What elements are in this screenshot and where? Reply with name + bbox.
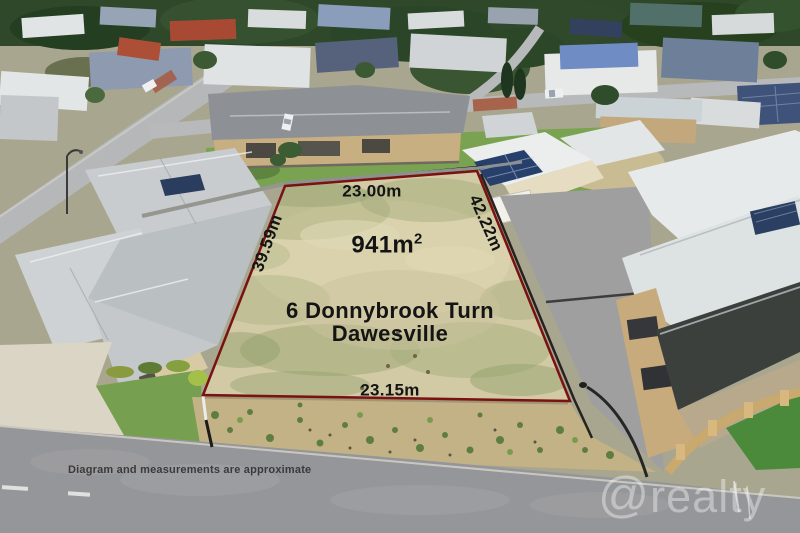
- aerial-photo-container: 23.00m 39.59m 42.22m 941m2 6 Donnybrook …: [0, 0, 800, 533]
- area-label: 941m2: [351, 233, 422, 258]
- at-symbol-icon: @: [598, 466, 650, 523]
- atrealty-watermark-logo: @realty: [598, 470, 766, 520]
- measurement-bottom: 23.15m: [360, 382, 419, 399]
- watermark-brand-name: realty: [650, 471, 766, 522]
- area-superscript: 2: [414, 232, 423, 248]
- measurement-top: 23.00m: [342, 183, 401, 200]
- area-value: 941m: [351, 232, 414, 259]
- address-line1: 6 Donnybrook Turn: [286, 300, 494, 322]
- address-line2: Dawesville: [332, 323, 449, 345]
- right-large-house: [616, 130, 800, 472]
- disclaimer-text: Diagram and measurements are approximate: [68, 464, 311, 476]
- aerial-scene: [0, 0, 800, 533]
